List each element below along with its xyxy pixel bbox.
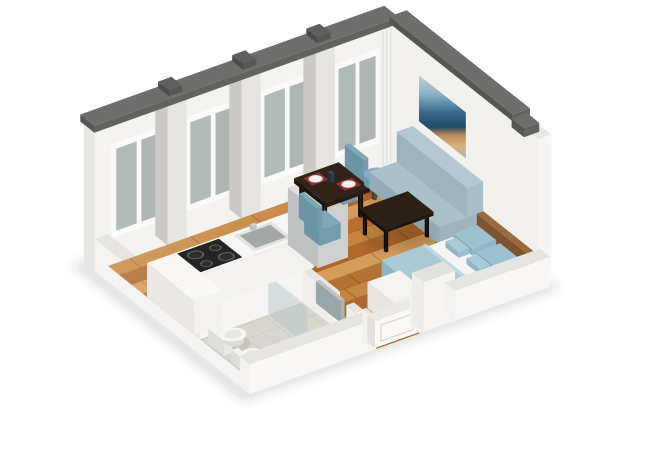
window-glass [190,115,211,204]
wall-pillar [155,95,168,246]
front-wall-pillar [412,273,424,332]
coffee-table-leg [384,230,386,253]
window-glass [116,141,137,230]
wall-pillar [242,71,261,219]
coffee-table-leg [386,231,388,253]
coffee-table-leg [427,216,429,238]
apartment-floorplan-render [0,0,650,450]
sofa-backrest [467,182,483,218]
curtain-fold [386,30,387,165]
curtain-fold [382,31,383,166]
wall-pillar [303,42,316,193]
window-glass [339,63,356,151]
window-glass [359,56,375,144]
curtain-fold [390,28,391,163]
dining-chair-back [318,207,323,233]
floorplan-3d-scene [0,0,650,450]
wall-pillar [229,68,242,219]
wall-pillar [168,98,187,246]
window-glass [264,88,285,177]
bottle [331,173,335,183]
back-wall [84,122,95,271]
